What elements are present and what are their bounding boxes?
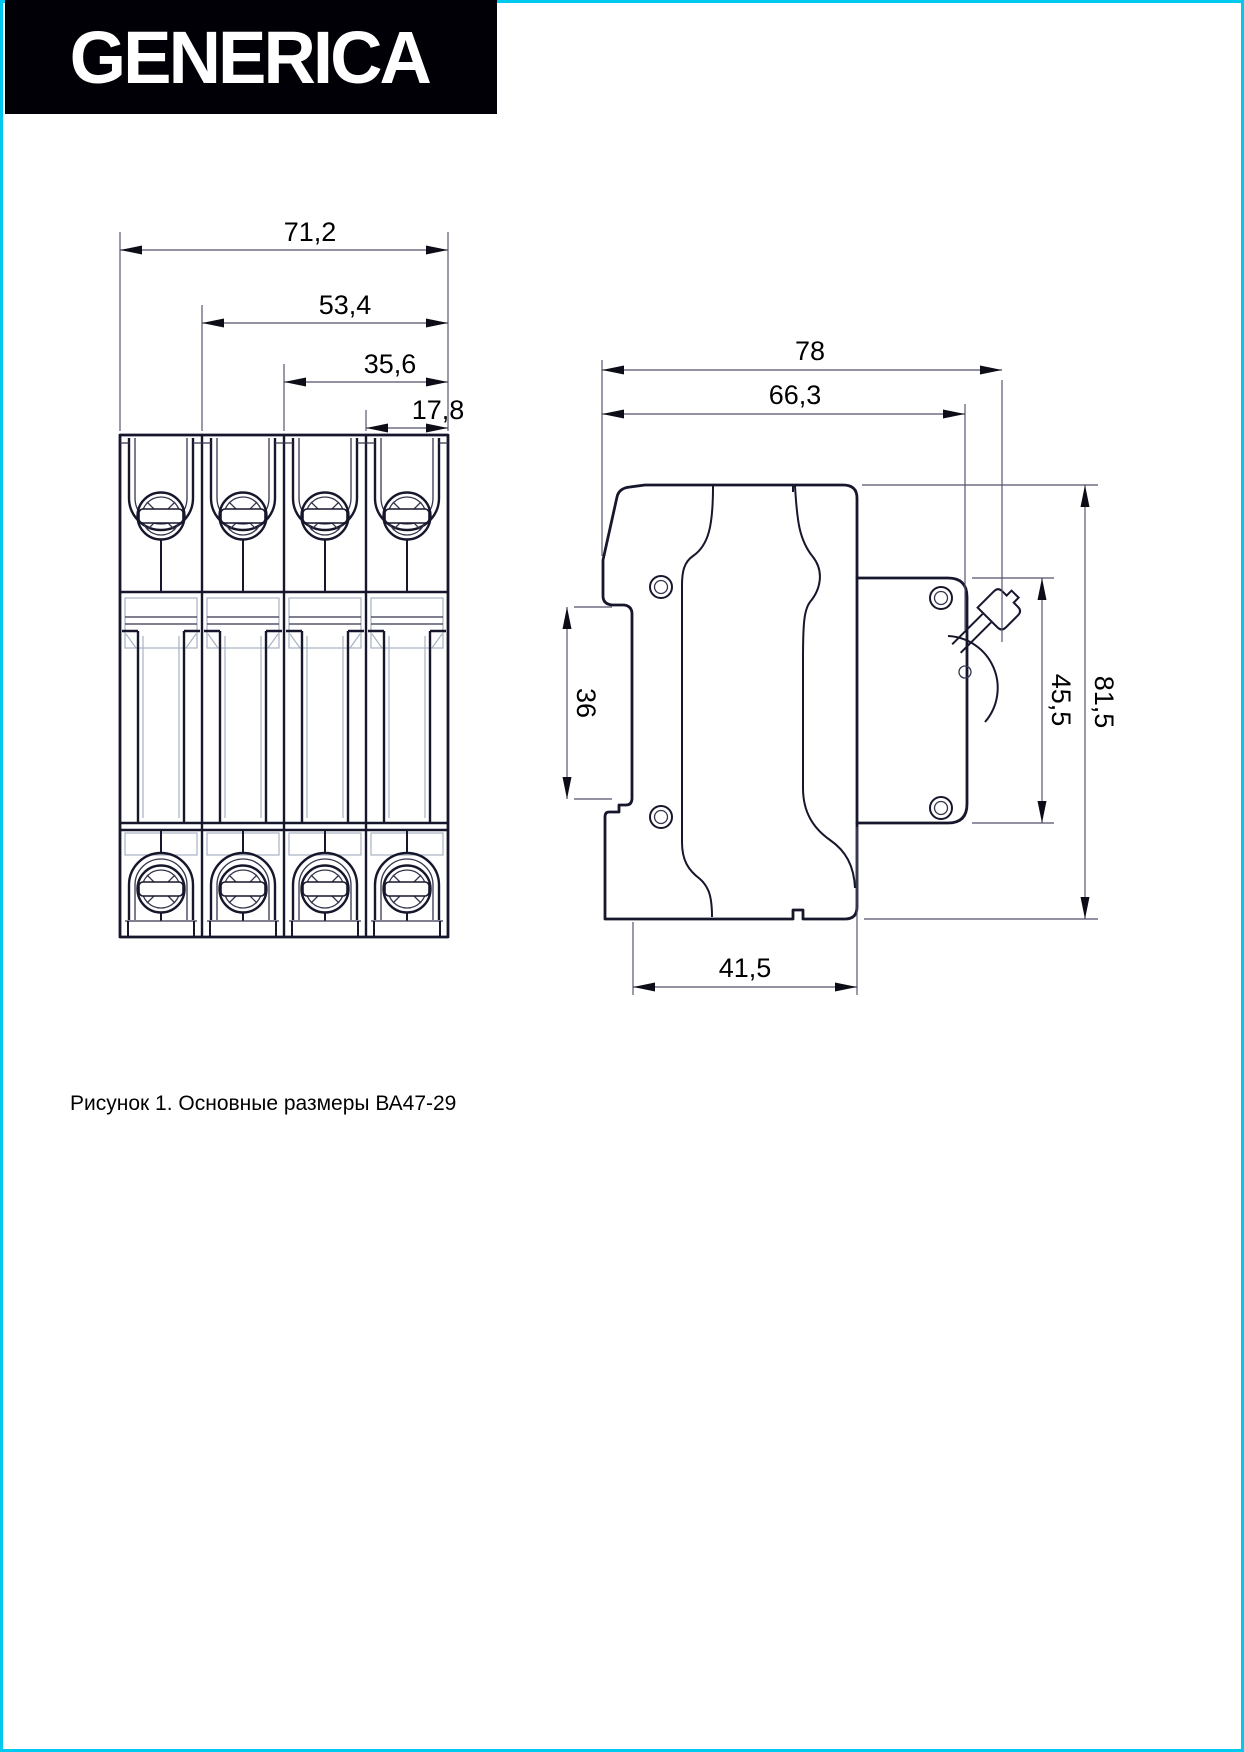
toggle-lever bbox=[947, 582, 1028, 722]
breaker-pole bbox=[202, 438, 284, 936]
dim-label-din-rail: 36 bbox=[571, 688, 601, 718]
dimension-71-2: 71,2 bbox=[120, 217, 448, 255]
dimension-45-5: 45,5 bbox=[1038, 578, 1077, 823]
dim-label-one-pole: 17,8 bbox=[412, 395, 465, 425]
dim-label-front-panel-height: 45,5 bbox=[1046, 674, 1076, 727]
dim-label-depth-with-lever: 78 bbox=[795, 336, 825, 366]
dimension-35-6: 35,6 bbox=[284, 349, 448, 387]
dimension-78: 78 bbox=[602, 336, 1002, 375]
logo-text: GENERICA bbox=[5, 15, 429, 100]
side-body-outline bbox=[603, 485, 857, 919]
dimension-41-5: 41,5 bbox=[633, 953, 857, 992]
breaker-pole bbox=[366, 438, 448, 936]
front-view-dimensions: 71,2 53,4 35,6 17,8 bbox=[120, 217, 464, 433]
dim-label-two-pole: 35,6 bbox=[364, 349, 417, 379]
breaker-pole bbox=[120, 438, 202, 936]
dimension-17-8: 17,8 bbox=[366, 395, 464, 433]
dimension-66-3: 66,3 bbox=[602, 380, 965, 419]
dim-label-base-depth: 41,5 bbox=[719, 953, 772, 983]
rivets bbox=[650, 576, 952, 828]
logo-bar: GENERICA bbox=[5, 0, 497, 114]
breaker-pole bbox=[284, 438, 366, 936]
side-front-panel bbox=[857, 578, 967, 823]
dim-label-three-pole: 53,4 bbox=[319, 290, 372, 320]
dimension-drawing: 71,2 53,4 35,6 17,8 bbox=[0, 0, 1244, 1160]
dimension-53-4: 53,4 bbox=[202, 290, 448, 328]
dimension-36: 36 bbox=[563, 607, 602, 799]
side-view-dimensions: 78 66,3 36 45,5 81,5 bbox=[563, 336, 1120, 995]
dimension-81-5: 81,5 bbox=[1081, 485, 1120, 919]
figure-caption: Рисунок 1. Основные размеры ВА47-29 bbox=[70, 1092, 456, 1116]
side-seam-right bbox=[795, 486, 855, 888]
front-view bbox=[120, 435, 448, 937]
dim-label-total-width: 71,2 bbox=[284, 217, 337, 247]
dim-label-depth-body: 66,3 bbox=[769, 380, 822, 410]
dim-label-total-height: 81,5 bbox=[1089, 676, 1119, 729]
side-seam-left bbox=[682, 486, 713, 917]
side-view bbox=[603, 485, 1027, 919]
